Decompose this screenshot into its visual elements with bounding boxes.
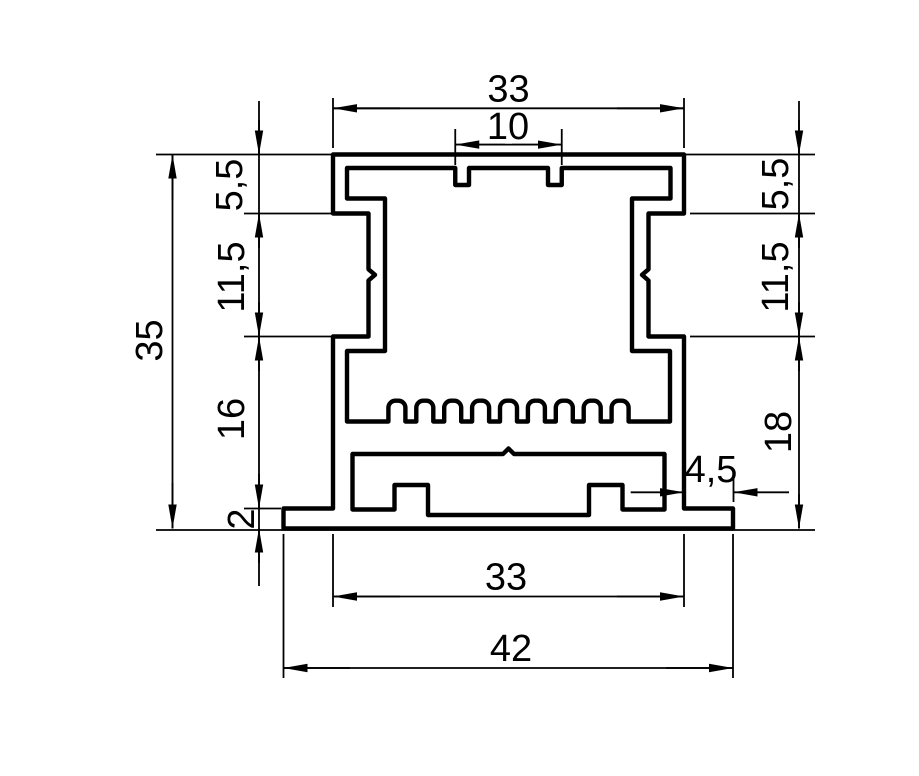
svg-text:16: 16 — [211, 398, 253, 440]
svg-text:10: 10 — [487, 106, 529, 148]
svg-text:2: 2 — [221, 508, 263, 529]
svg-text:18: 18 — [758, 411, 800, 453]
svg-text:11,5: 11,5 — [211, 241, 253, 312]
svg-text:4,5: 4,5 — [685, 449, 738, 491]
svg-text:42: 42 — [490, 628, 532, 670]
svg-text:11,5: 11,5 — [755, 241, 797, 312]
svg-text:33: 33 — [487, 68, 529, 110]
svg-text:35: 35 — [129, 319, 171, 361]
svg-text:5,5: 5,5 — [209, 159, 251, 212]
svg-text:5,5: 5,5 — [755, 158, 797, 211]
svg-text:33: 33 — [485, 557, 527, 599]
